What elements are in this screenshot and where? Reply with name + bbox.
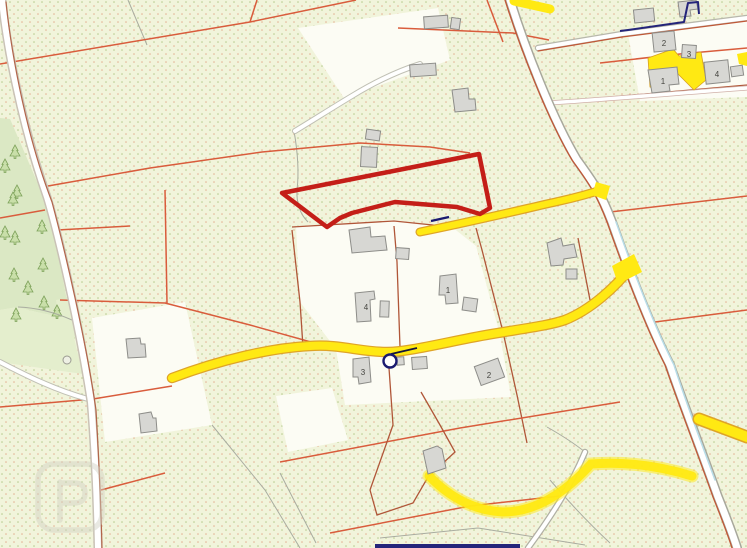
map-marker[interactable] [384,355,397,368]
plot-number-label: 4 [715,70,720,79]
pond [63,356,71,364]
building [566,269,577,279]
plot-number-label: 3 [687,50,692,59]
building [380,301,390,317]
building [360,147,377,168]
building [450,17,460,29]
bottom-navy-bar [375,544,520,548]
building [412,356,428,369]
plot-number-label: 2 [487,371,492,380]
building [397,357,405,365]
map-viewport[interactable]: 1 2 3 4 1 2 3 4 [0,0,747,548]
plot-number-label: 3 [361,368,366,377]
building [633,8,654,23]
plot-number-label: 1 [661,77,666,86]
building [365,129,380,141]
building [730,65,743,77]
plot-number-label: 4 [364,303,369,312]
plot-number-label: 2 [662,39,667,48]
plot-number-label: 1 [446,286,451,295]
building [462,297,478,312]
building [396,248,410,260]
building [410,63,437,77]
building [424,15,449,29]
map-canvas[interactable]: 1 2 3 4 1 2 3 4 [0,0,747,548]
